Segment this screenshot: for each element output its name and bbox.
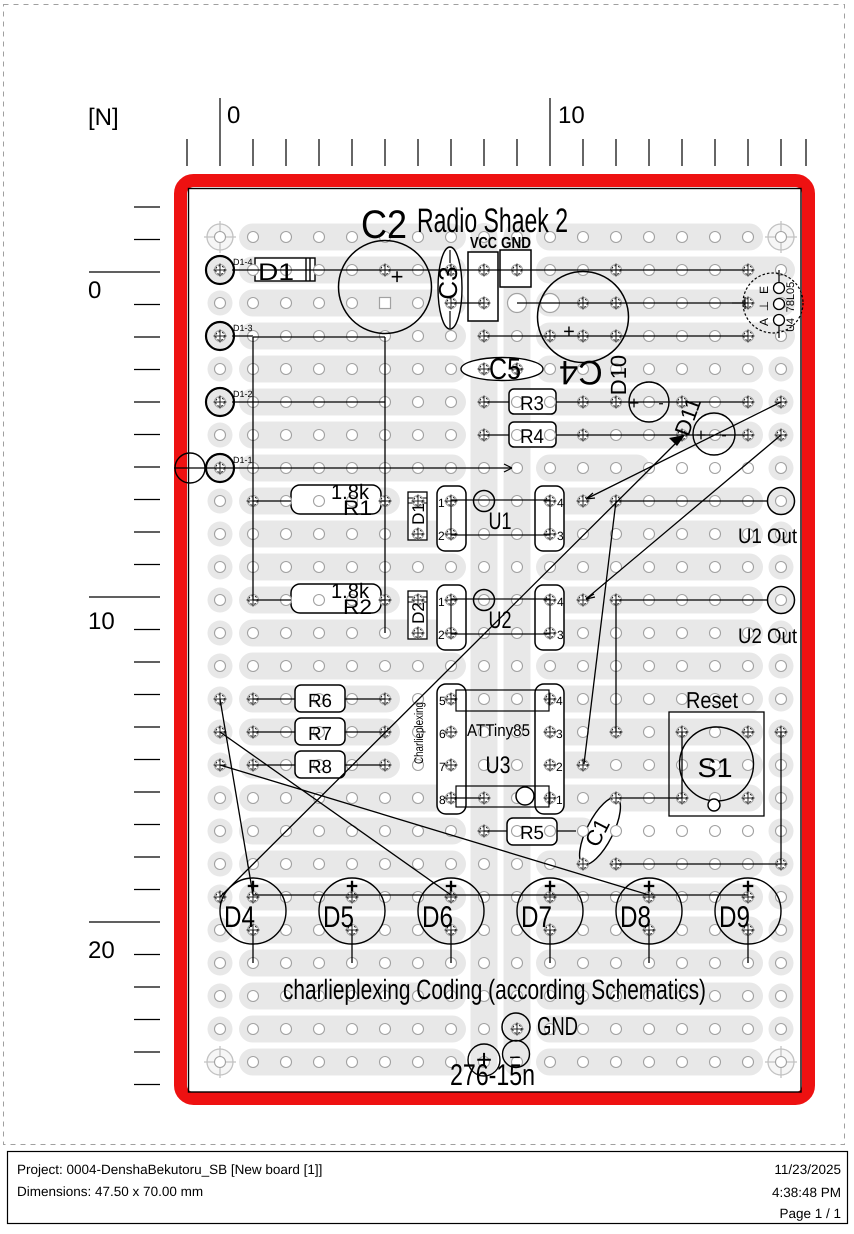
svg-text:Charlieplexing: Charlieplexing bbox=[412, 702, 426, 764]
svg-text:U1: U1 bbox=[489, 508, 512, 535]
svg-text:-: - bbox=[658, 395, 663, 412]
svg-text:D9: D9 bbox=[719, 901, 750, 934]
svg-text:7: 7 bbox=[439, 760, 446, 774]
svg-text:D6: D6 bbox=[422, 901, 453, 934]
svg-text:S1: S1 bbox=[698, 753, 733, 783]
svg-text:charlieplexing Coding (accordi: charlieplexing Coding (according Schemat… bbox=[283, 974, 706, 1005]
svg-text:4:38:48 PM: 4:38:48 PM bbox=[772, 1185, 841, 1200]
svg-text:5: 5 bbox=[439, 694, 446, 708]
svg-text:GND: GND bbox=[537, 1011, 578, 1041]
svg-text:D1: D1 bbox=[409, 503, 428, 525]
svg-text:R2: R2 bbox=[343, 596, 372, 619]
svg-text:4: 4 bbox=[557, 595, 564, 609]
svg-text:+: + bbox=[742, 875, 754, 898]
svg-text:10: 10 bbox=[88, 608, 115, 635]
svg-text:+: + bbox=[696, 425, 707, 445]
svg-text:U2 Out: U2 Out bbox=[738, 625, 797, 648]
svg-text:D1-3: D1-3 bbox=[233, 323, 253, 333]
svg-text:D8: D8 bbox=[620, 901, 651, 934]
svg-text:U3: U3 bbox=[486, 752, 511, 779]
svg-text:D1-2: D1-2 bbox=[233, 389, 253, 399]
svg-text:+: + bbox=[391, 264, 404, 289]
svg-text:11/23/2025: 11/23/2025 bbox=[774, 1162, 841, 1177]
svg-text:+: + bbox=[445, 875, 457, 898]
svg-text:Dimensions: 47.50 x 70.00 mm: Dimensions: 47.50 x 70.00 mm bbox=[17, 1184, 203, 1199]
svg-text:U4: U4 bbox=[785, 318, 797, 332]
svg-text:0: 0 bbox=[227, 102, 240, 129]
svg-text:A: A bbox=[757, 318, 771, 326]
svg-text:+: + bbox=[346, 875, 358, 898]
svg-text:D1-4: D1-4 bbox=[233, 257, 253, 267]
svg-text:C2: C2 bbox=[361, 203, 407, 247]
svg-text:D4: D4 bbox=[224, 901, 255, 934]
svg-text:+: + bbox=[563, 321, 575, 343]
svg-text:Page 1 / 1: Page 1 / 1 bbox=[779, 1206, 841, 1221]
svg-text:3: 3 bbox=[557, 628, 564, 642]
svg-text:R1: R1 bbox=[343, 497, 372, 520]
svg-text:20: 20 bbox=[88, 937, 115, 964]
svg-text:[N]: [N] bbox=[88, 104, 119, 131]
svg-text:2: 2 bbox=[556, 760, 563, 774]
svg-text:3: 3 bbox=[557, 529, 564, 543]
svg-text:0: 0 bbox=[88, 277, 101, 304]
svg-text:U2: U2 bbox=[489, 607, 512, 634]
svg-text:6: 6 bbox=[439, 727, 446, 741]
svg-text:R6: R6 bbox=[308, 691, 332, 712]
svg-text:ATTiny85: ATTiny85 bbox=[467, 721, 530, 740]
svg-text:R4: R4 bbox=[520, 426, 544, 448]
svg-text:+: + bbox=[544, 875, 556, 898]
svg-text:1: 1 bbox=[438, 595, 445, 609]
svg-text:2: 2 bbox=[438, 529, 445, 543]
svg-text:D1: D1 bbox=[258, 259, 294, 286]
svg-text:276-15n: 276-15n bbox=[450, 1059, 535, 1092]
svg-text:-: - bbox=[721, 427, 726, 444]
svg-text:10: 10 bbox=[558, 102, 585, 129]
svg-text:D10: D10 bbox=[606, 355, 631, 395]
svg-text:2: 2 bbox=[438, 628, 445, 642]
svg-text:+: + bbox=[643, 875, 655, 898]
svg-text:Project: 0004-DenshaBekutoru_S: Project: 0004-DenshaBekutoru_SB [New boa… bbox=[17, 1162, 322, 1177]
svg-text:D2: D2 bbox=[409, 602, 428, 624]
svg-text:C5: C5 bbox=[489, 353, 521, 386]
svg-text:D5: D5 bbox=[323, 901, 354, 934]
svg-text:3: 3 bbox=[556, 727, 563, 741]
svg-text:R8: R8 bbox=[308, 757, 332, 778]
svg-text:1: 1 bbox=[438, 496, 445, 510]
svg-text:C4: C4 bbox=[559, 353, 602, 391]
svg-text:R3: R3 bbox=[520, 393, 544, 415]
svg-text:R7: R7 bbox=[308, 724, 332, 745]
svg-text:C3: C3 bbox=[433, 266, 463, 299]
svg-text:D7: D7 bbox=[521, 901, 552, 934]
svg-text:+: + bbox=[247, 875, 259, 898]
svg-text:78L05: 78L05 bbox=[785, 282, 797, 313]
svg-text:GND: GND bbox=[501, 235, 531, 252]
svg-text:8: 8 bbox=[439, 793, 446, 807]
svg-text:4: 4 bbox=[557, 496, 564, 510]
svg-text:4: 4 bbox=[556, 694, 563, 708]
svg-text:⊥: ⊥ bbox=[757, 301, 771, 311]
svg-text:D1-1: D1-1 bbox=[233, 455, 253, 465]
svg-text:Reset: Reset bbox=[686, 687, 739, 713]
svg-text:E: E bbox=[757, 286, 771, 294]
svg-text:1: 1 bbox=[556, 793, 563, 807]
svg-text:R5: R5 bbox=[520, 823, 544, 844]
svg-text:U1 Out: U1 Out bbox=[738, 525, 797, 548]
svg-text:VCC: VCC bbox=[470, 235, 497, 252]
